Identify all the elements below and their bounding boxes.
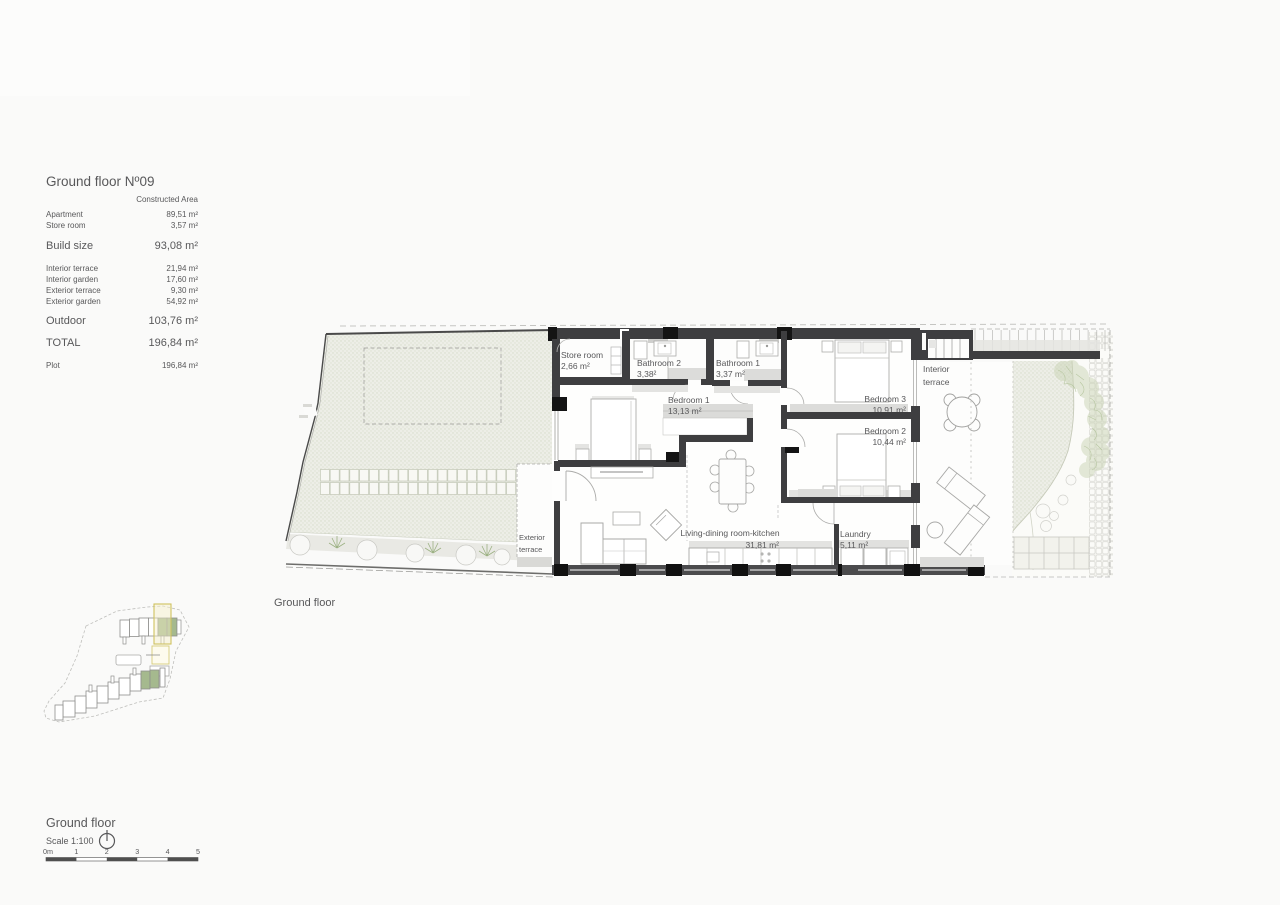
svg-text:196,84 m²: 196,84 m² [148,337,198,349]
svg-text:93,08 m²: 93,08 m² [155,240,199,252]
svg-text:4: 4 [166,847,170,856]
svg-text:Ground floor: Ground floor [46,816,115,830]
svg-text:103,76 m²: 103,76 m² [148,315,198,327]
svg-text:Store room: Store room [561,350,603,360]
svg-text:1: 1 [74,847,78,856]
svg-text:Ground floor Nº09: Ground floor Nº09 [46,174,155,189]
svg-text:31,81 m²: 31,81 m² [745,540,779,550]
svg-text:Apartment: Apartment [46,210,84,219]
svg-text:terrace: terrace [923,377,950,387]
svg-text:Bedroom 3: Bedroom 3 [864,394,906,404]
svg-text:Ground floor: Ground floor [274,597,335,609]
svg-text:Bathroom 1: Bathroom 1 [716,358,760,368]
svg-text:5: 5 [196,847,200,856]
svg-text:21,94 m²: 21,94 m² [166,264,198,273]
svg-text:terrace: terrace [519,545,542,554]
svg-text:Bedroom 1: Bedroom 1 [668,395,710,405]
svg-text:3,57 m²: 3,57 m² [171,221,198,230]
svg-text:3: 3 [135,847,139,856]
svg-text:Exterior: Exterior [519,533,545,542]
svg-text:Exterior terrace: Exterior terrace [46,286,101,295]
svg-text:5,11 m²: 5,11 m² [840,540,868,550]
svg-text:Exterior garden: Exterior garden [46,297,101,306]
svg-text:Bedroom 2: Bedroom 2 [864,426,906,436]
svg-text:13,13 m²: 13,13 m² [668,406,702,416]
svg-text:TOTAL: TOTAL [46,337,80,349]
svg-text:Interior: Interior [923,364,950,374]
svg-text:89,51 m²: 89,51 m² [166,210,198,219]
svg-text:10,44 m²: 10,44 m² [872,437,906,447]
svg-text:0m: 0m [43,847,53,856]
svg-text:Living-dining room-kitchen: Living-dining room-kitchen [680,528,779,538]
svg-text:Interior garden: Interior garden [46,275,98,284]
svg-text:Plot: Plot [46,361,61,370]
svg-text:Interior terrace: Interior terrace [46,264,99,273]
svg-text:2,66 m²: 2,66 m² [561,361,590,371]
svg-text:54,92 m²: 54,92 m² [166,297,198,306]
svg-text:Constructed Area: Constructed Area [136,195,198,204]
svg-text:196,84 m²: 196,84 m² [162,361,198,370]
svg-text:9,30 m²: 9,30 m² [171,286,198,295]
svg-text:2: 2 [105,847,109,856]
svg-text:Scale 1:100: Scale 1:100 [46,836,94,846]
svg-text:Bathroom 2: Bathroom 2 [637,358,681,368]
svg-text:Laundry: Laundry [840,529,871,539]
svg-text:17,60 m²: 17,60 m² [166,275,198,284]
svg-text:Store room: Store room [46,221,86,230]
svg-text:Outdoor: Outdoor [46,315,86,327]
svg-text:Build size: Build size [46,240,93,252]
svg-text:3,38²: 3,38² [637,369,657,379]
svg-text:3,37 m²: 3,37 m² [716,369,745,379]
